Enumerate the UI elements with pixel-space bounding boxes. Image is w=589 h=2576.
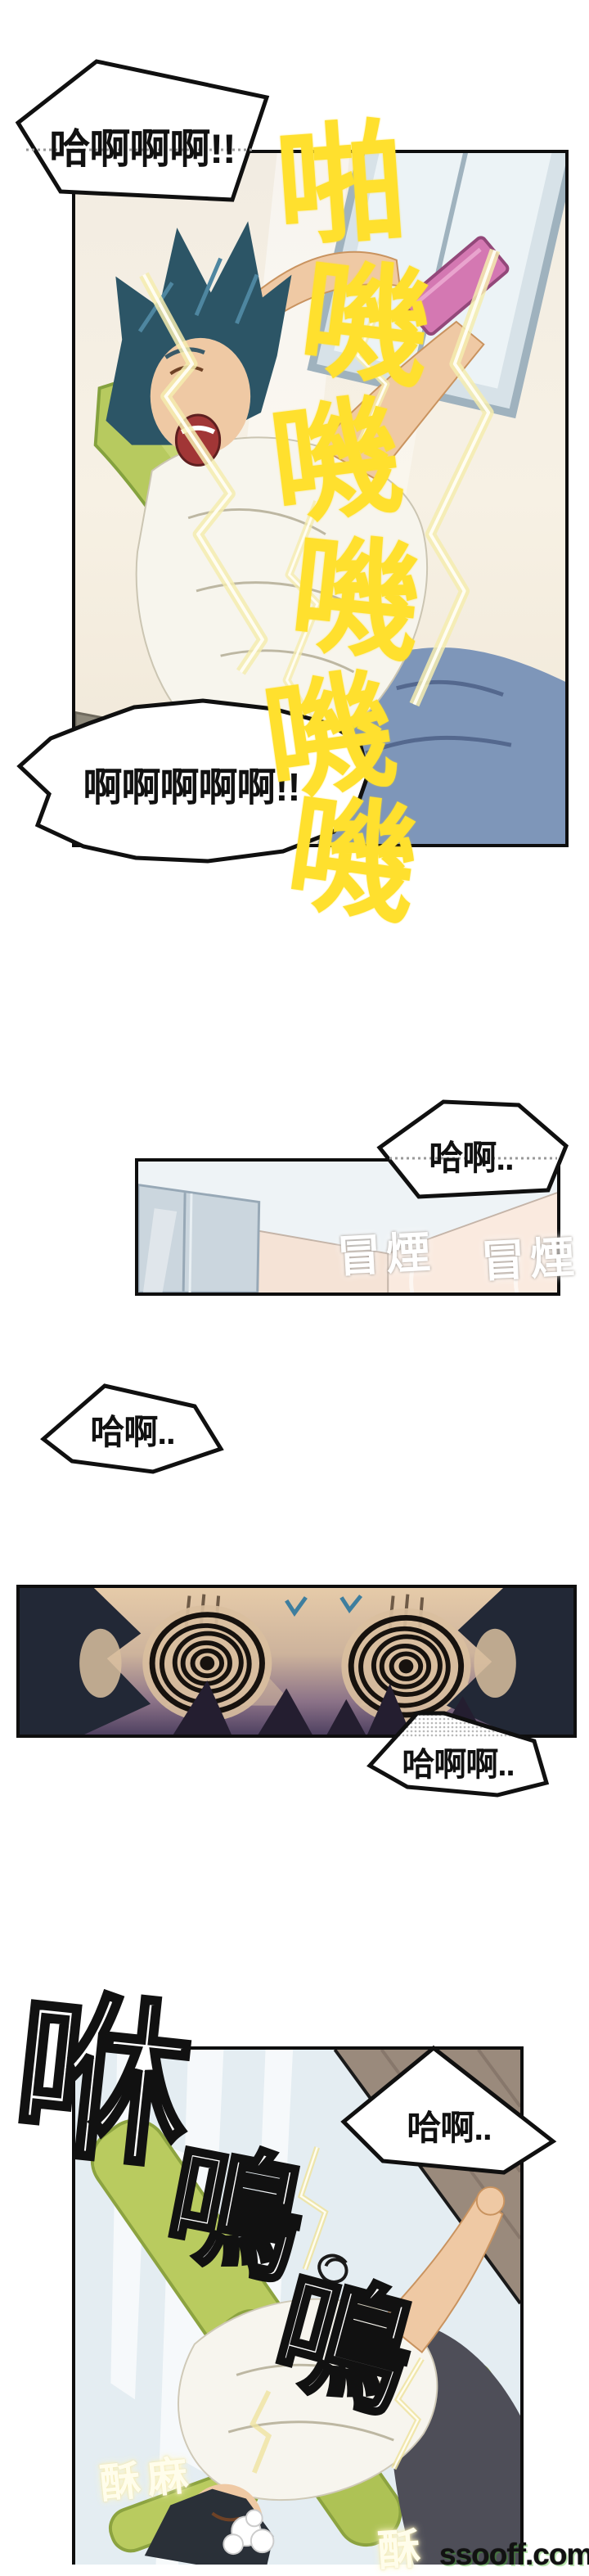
scream1-text: 哈啊啊啊!! — [7, 54, 278, 206]
sfx-smoke-2: 冒煙 — [480, 1235, 581, 1284]
sfx-tingle-1: 酥麻 — [98, 2454, 197, 2505]
sigh-lying-text: 哈啊.. — [342, 2045, 556, 2177]
speech-bubble-sigh-lying: 哈啊.. — [342, 2045, 556, 2177]
sfx-electric-char-6: 嘰 — [280, 787, 425, 933]
sfx-tingle-2: 酥 — [376, 2528, 422, 2574]
speech-bubble-sigh-room: 哈啊.. — [373, 1097, 569, 1207]
sfx-smoke-1: 冒煙 — [336, 1230, 437, 1279]
watermark: ssooff.com — [439, 2539, 589, 2569]
sfx-whoosh-char-1: 咻 — [6, 1985, 199, 2178]
speech-bubble-sigh-alone: 哈啊.. — [41, 1382, 224, 1477]
speech-bubble-scream1: 哈啊啊啊!! — [7, 54, 278, 206]
sfx-whoosh-char-2: 鳴 — [156, 2135, 314, 2293]
sfx-electric-char-4: 嘰 — [285, 529, 427, 671]
sigh-eyes-text: 哈啊啊.. — [365, 1709, 551, 1799]
sigh-alone-text: 哈啊.. — [41, 1382, 224, 1477]
speech-bubble-sigh-eyes: 哈啊啊.. — [365, 1709, 551, 1799]
comic-page: { "page": {"width": 720, "height": 3133,… — [0, 0, 589, 2565]
sigh-room-text: 哈啊.. — [373, 1097, 569, 1207]
sfx-electric-char-3: 嘰 — [264, 390, 408, 535]
sfx-electric-char-1: 啪 — [272, 117, 411, 255]
sfx-electric-char-2: 嘰 — [294, 253, 438, 397]
